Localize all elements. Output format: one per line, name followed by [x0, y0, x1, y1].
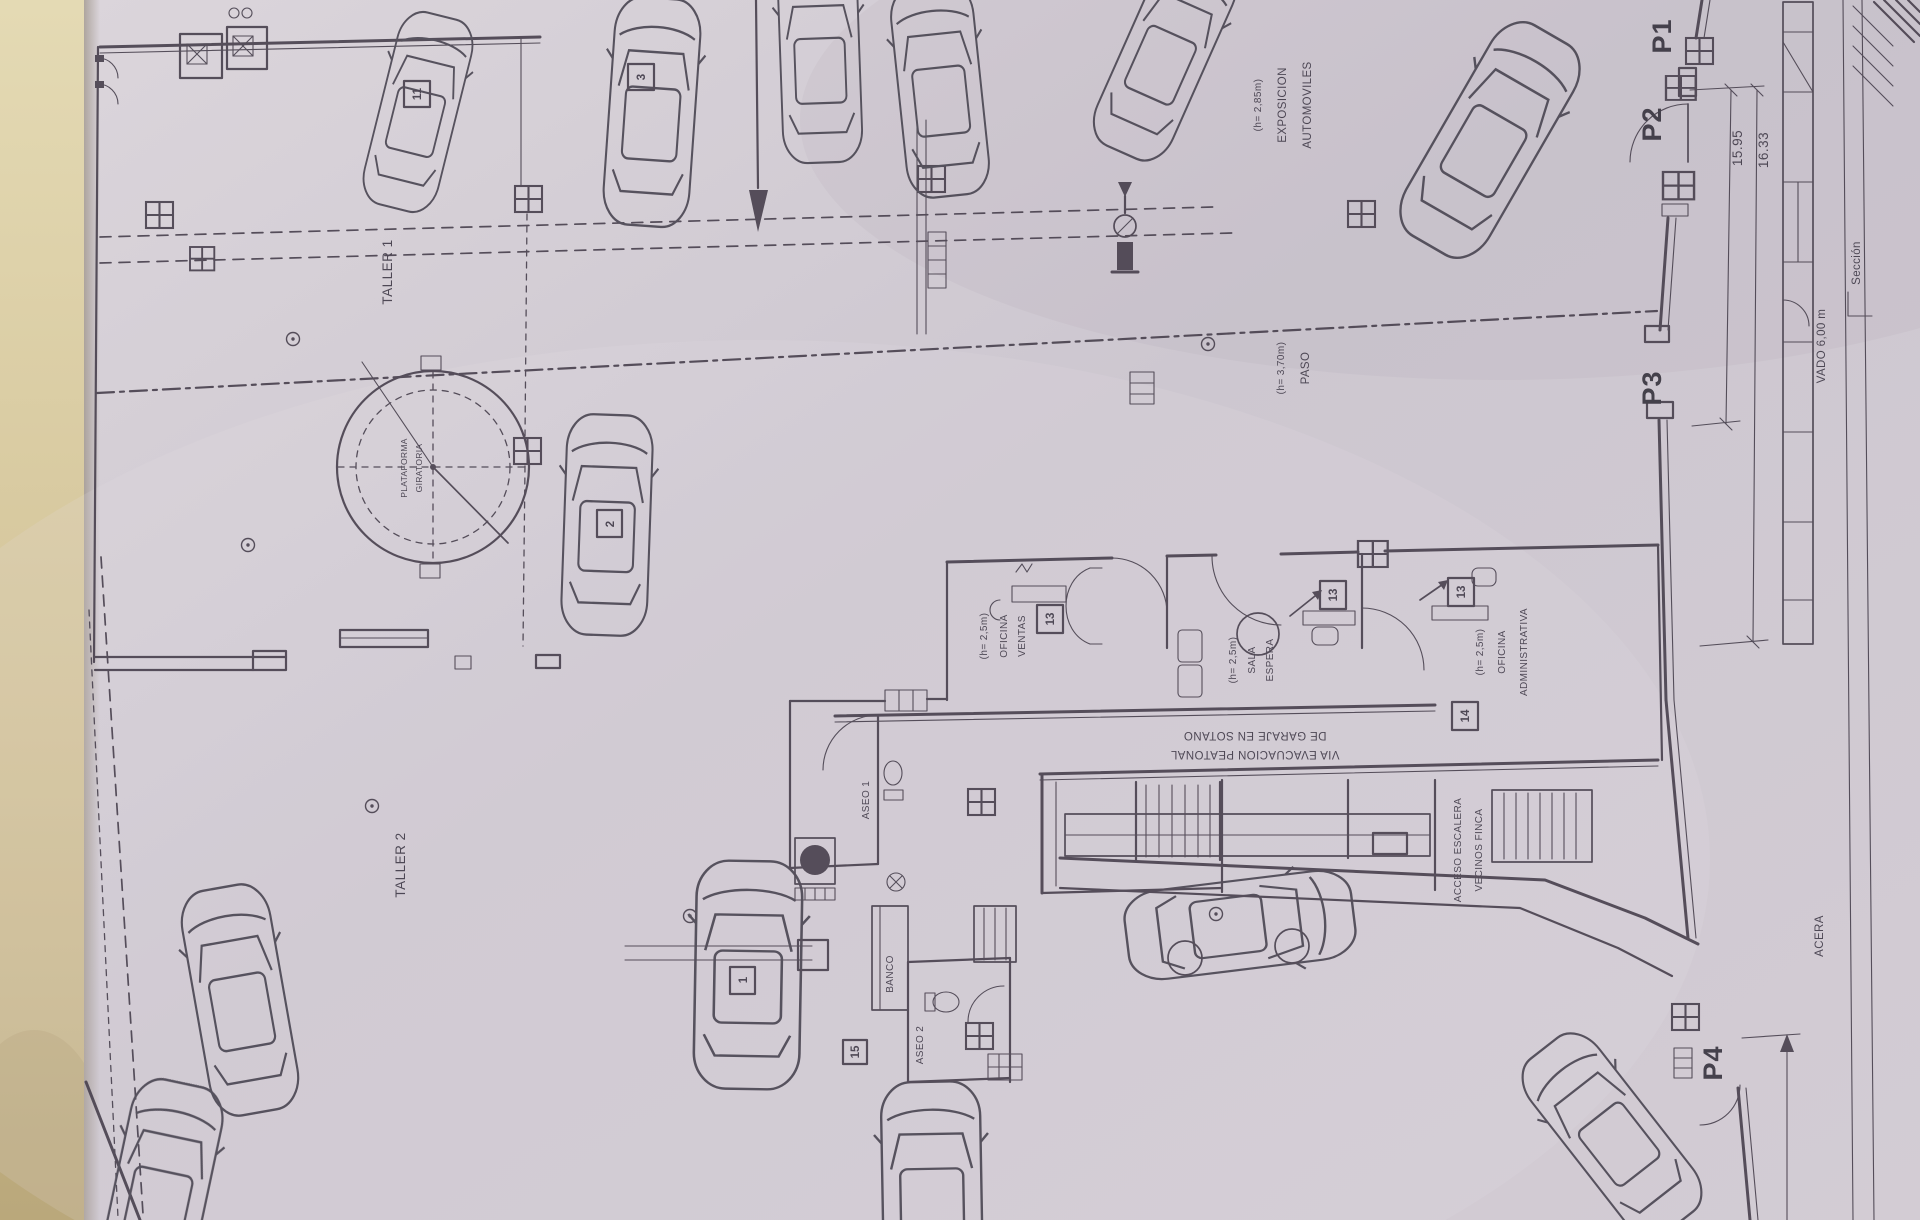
svg-text:OFICINA: OFICINA — [1497, 630, 1508, 673]
tag-13-ventas: 13 — [1045, 613, 1057, 626]
aseo2-label: ASEO 2 — [915, 1026, 926, 1065]
stall-11: 11 — [412, 87, 424, 100]
vado-label: VADO 6,00 m — [1816, 309, 1828, 384]
svg-text:ADMINISTRATIVA: ADMINISTRATIVA — [1519, 608, 1530, 696]
svg-text:(h= 2,5m): (h= 2,5m) — [1475, 629, 1486, 676]
svg-text:PASO: PASO — [1300, 352, 1312, 385]
turntable-label-1: PLATAFORMA — [399, 438, 409, 497]
oficina-ventas-label: (h= 2,5m) OFICINA VENTAS — [979, 613, 1028, 660]
door-p2-label: P2 — [1637, 106, 1667, 141]
turntable-label-2: GIRATORIA — [414, 444, 424, 493]
door-p1-label: P1 — [1647, 18, 1677, 53]
taller1-label: TALLER 1 — [380, 239, 395, 304]
svg-text:VECINOS FINCA: VECINOS FINCA — [1474, 809, 1485, 892]
floor-plan-photo: PLATAFORMA GIRATORIA — [0, 0, 1920, 1220]
svg-text:VENTAS: VENTAS — [1017, 615, 1028, 657]
svg-text:VIA EVACUACION PEATONAL: VIA EVACUACION PEATONAL — [1170, 748, 1339, 760]
svg-text:ACCESO ESCALERA: ACCESO ESCALERA — [1453, 798, 1464, 902]
svg-text:(h= 2,85m): (h= 2,85m) — [1253, 79, 1264, 132]
tag-13-admin: 13 — [1456, 586, 1468, 599]
svg-text:DE GARAJE EN SOTANO: DE GARAJE EN SOTANO — [1184, 729, 1327, 741]
svg-text:ESPERA: ESPERA — [1265, 639, 1276, 682]
aseo1-label: ASEO 1 — [861, 781, 872, 820]
tag-15: 15 — [850, 1045, 862, 1058]
svg-text:(h= 2,5m): (h= 2,5m) — [1228, 637, 1239, 684]
stall-3: 3 — [636, 74, 648, 80]
blueprint-svg: PLATAFORMA GIRATORIA — [0, 0, 1920, 1220]
svg-text:(h= 3,70m): (h= 3,70m) — [1276, 342, 1287, 395]
door-p4-label: P4 — [1698, 1045, 1728, 1080]
svg-text:EXPOSICION: EXPOSICION — [1277, 67, 1289, 143]
door-p3-label: P3 — [1637, 370, 1667, 405]
svg-text:(h= 2,5m): (h= 2,5m) — [979, 613, 990, 660]
tag-14: 14 — [1460, 709, 1472, 722]
svg-text:AUTOMOVILES: AUTOMOVILES — [1302, 61, 1314, 148]
stall-1: 1 — [738, 976, 750, 983]
acera-label: ACERA — [1814, 915, 1826, 957]
svg-text:OFICINA: OFICINA — [999, 614, 1010, 657]
taller2-label: TALLER 2 — [393, 832, 408, 897]
dim-1595: 15.95 — [1730, 130, 1745, 166]
banco-label: BANCO — [885, 955, 896, 993]
tag-13-sala: 13 — [1328, 589, 1340, 602]
seccion-label: Sección — [1851, 241, 1863, 285]
stall-2: 2 — [605, 521, 617, 527]
svg-text:SALA: SALA — [1247, 646, 1258, 673]
dim-1633: 16.33 — [1756, 132, 1771, 168]
